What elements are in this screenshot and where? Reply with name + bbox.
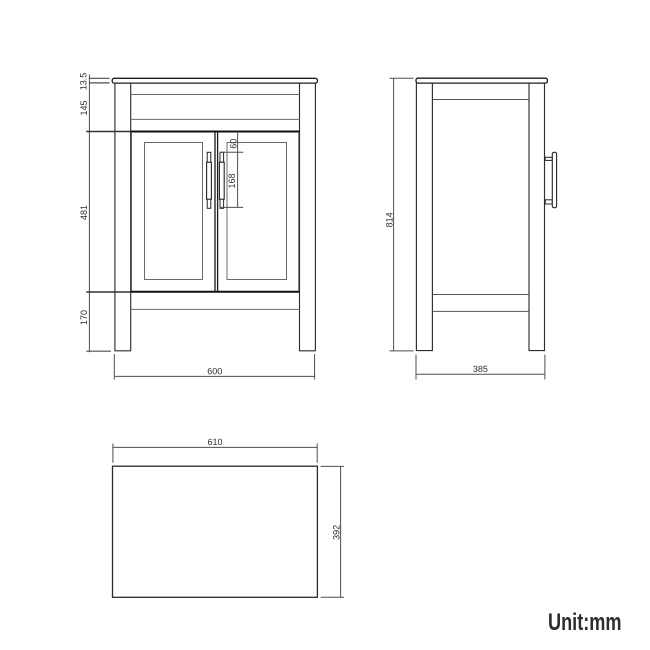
svg-text:610: 610 xyxy=(207,437,222,447)
svg-text:145: 145 xyxy=(79,100,89,115)
svg-text:600: 600 xyxy=(207,366,222,376)
svg-text:60: 60 xyxy=(229,139,239,149)
svg-text:168: 168 xyxy=(227,173,237,188)
svg-text:385: 385 xyxy=(473,364,488,374)
svg-text:481: 481 xyxy=(79,205,89,220)
svg-text:13.5: 13.5 xyxy=(79,73,89,91)
svg-text:392: 392 xyxy=(331,525,341,540)
svg-text:170: 170 xyxy=(79,310,89,325)
svg-text:Unit:mm: Unit:mm xyxy=(548,607,622,635)
svg-text:814: 814 xyxy=(385,212,395,227)
